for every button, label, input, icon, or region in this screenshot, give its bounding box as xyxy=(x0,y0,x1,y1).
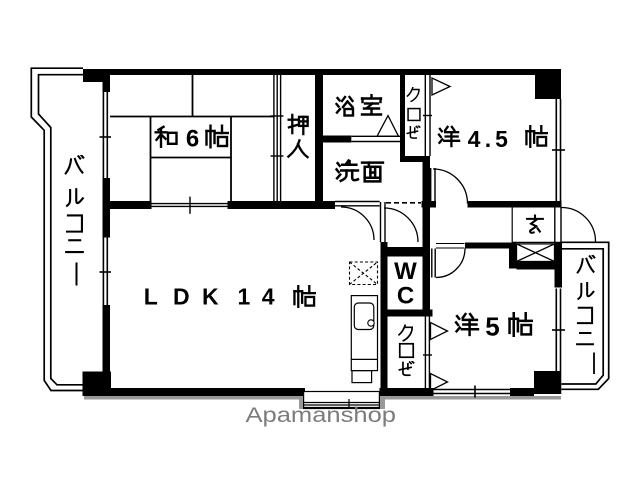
svg-text:K: K xyxy=(202,284,219,310)
svg-text:4: 4 xyxy=(262,284,275,310)
svg-text:4: 4 xyxy=(468,126,481,152)
svg-text:L: L xyxy=(144,284,158,310)
svg-text:6: 6 xyxy=(186,126,199,153)
svg-text:.: . xyxy=(485,126,491,152)
svg-text:1: 1 xyxy=(238,284,251,310)
svg-text:D: D xyxy=(173,284,190,310)
svg-text:C: C xyxy=(397,283,414,310)
svg-text:5: 5 xyxy=(485,312,499,342)
svg-text:W: W xyxy=(394,258,417,285)
svg-text:Apamanshop: Apamanshop xyxy=(246,404,397,427)
svg-text:5: 5 xyxy=(495,126,508,152)
